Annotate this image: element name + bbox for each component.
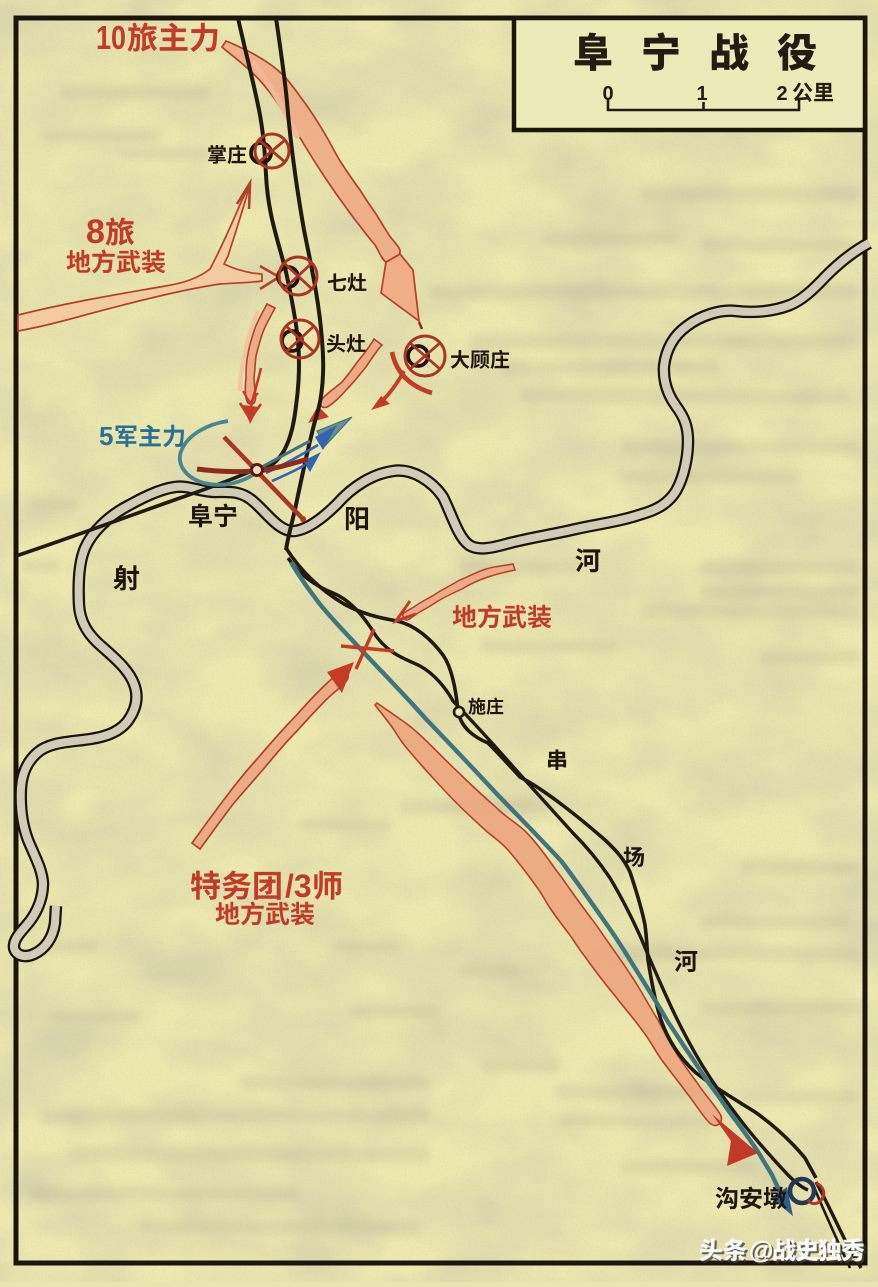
svg-text:/3: /3 — [285, 868, 312, 904]
svg-text:2: 2 — [776, 83, 787, 105]
svg-text:1: 1 — [696, 83, 707, 105]
svg-text:5: 5 — [99, 421, 113, 451]
svg-text:10: 10 — [96, 19, 126, 56]
svg-text:8: 8 — [86, 213, 105, 251]
svg-text:0: 0 — [602, 83, 613, 105]
svg-text:@: @ — [749, 1237, 773, 1265]
